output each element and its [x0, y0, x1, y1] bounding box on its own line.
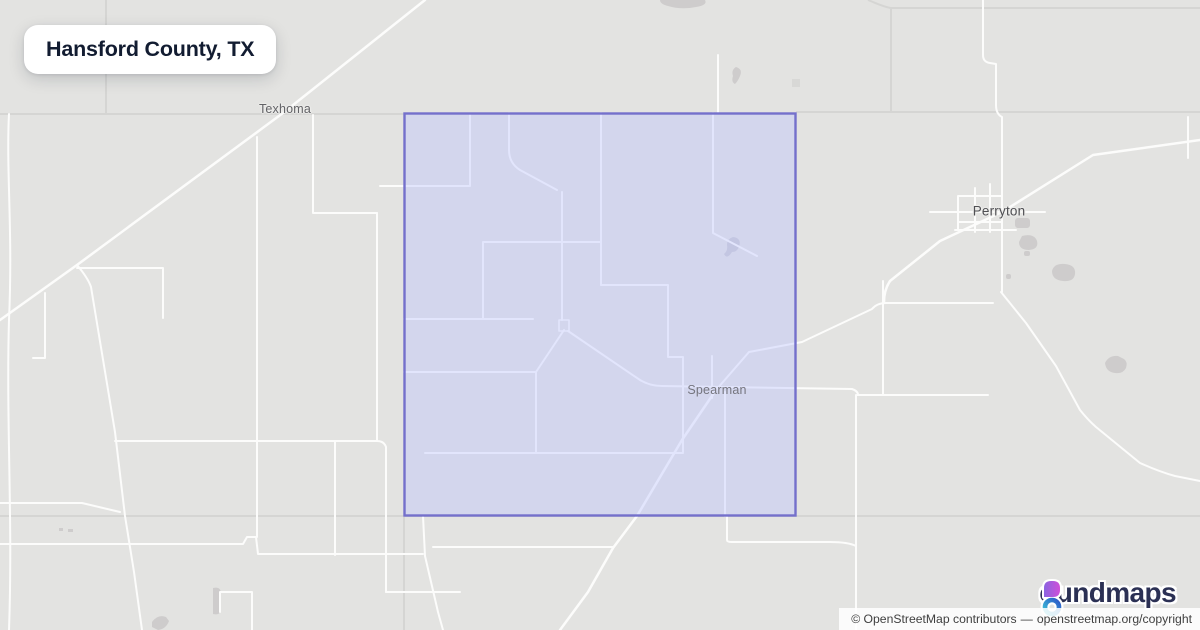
attribution-text: © OpenStreetMap contributors	[851, 612, 1016, 626]
map-canvas: Hansford County, TX oundmaps © OpenStree…	[0, 0, 1200, 630]
boundmaps-logo: oundmaps	[1039, 579, 1176, 608]
county-boundary-overlay	[405, 114, 796, 516]
city-label-perryton: Perryton	[973, 204, 1026, 219]
county-title-badge: Hansford County, TX	[24, 25, 276, 74]
city-label-spearman: Spearman	[687, 383, 746, 397]
county-fill	[405, 114, 796, 516]
attribution-separator: —	[1021, 612, 1033, 626]
attribution-copyright-link[interactable]: openstreetmap.org/copyright	[1037, 612, 1192, 626]
county-title-text: Hansford County, TX	[46, 37, 254, 62]
base-map-svg	[0, 0, 1200, 630]
logo-drop-shape	[1044, 581, 1060, 597]
city-label-texhoma: Texhoma	[259, 102, 311, 116]
attribution-bar: © OpenStreetMap contributors — openstree…	[839, 608, 1200, 630]
